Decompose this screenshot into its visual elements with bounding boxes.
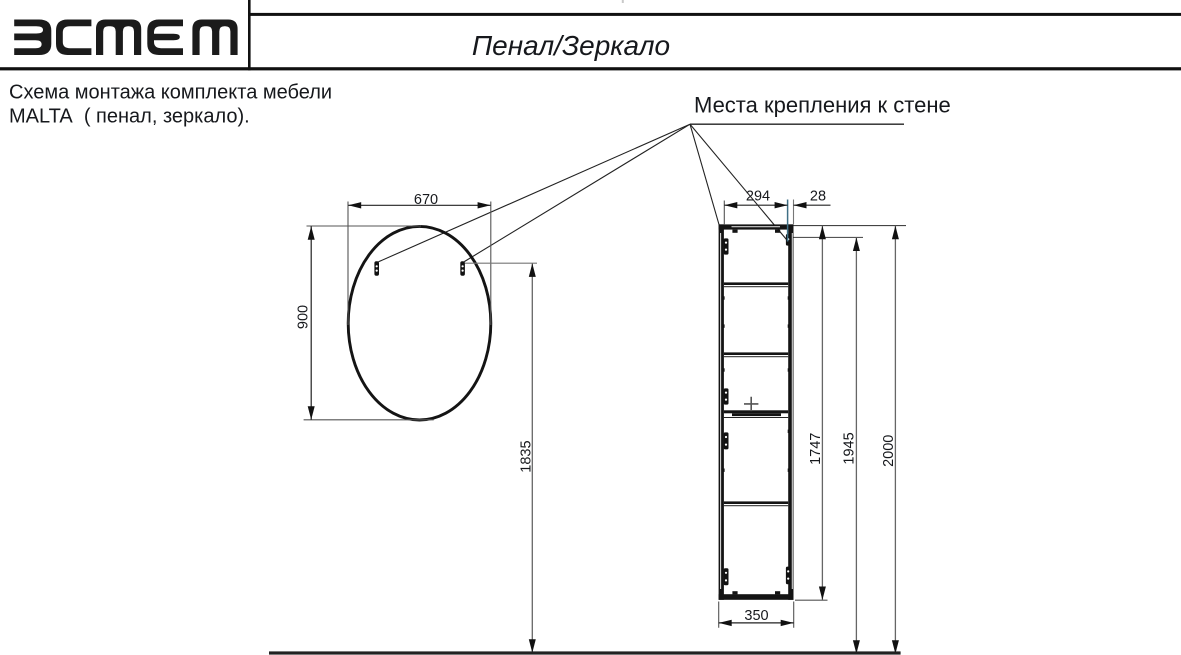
svg-text:Пенал/Зеркало: Пенал/Зеркало	[472, 30, 670, 61]
svg-text:350: 350	[744, 608, 768, 624]
svg-text:1747: 1747	[808, 433, 824, 465]
svg-text:Места крепления к стене: Места крепления к стене	[694, 93, 951, 118]
svg-text:MALTA ( пенал, зеркало).: MALTA ( пенал, зеркало).	[9, 106, 250, 128]
svg-text:1945: 1945	[842, 432, 858, 464]
svg-text:1835: 1835	[519, 440, 535, 472]
svg-text:900: 900	[295, 305, 311, 329]
svg-text:28: 28	[810, 188, 826, 204]
svg-text:294: 294	[746, 188, 770, 204]
svg-text:670: 670	[414, 192, 438, 208]
svg-text:2000: 2000	[881, 435, 897, 467]
svg-text:Схема монтажа комплекта мебели: Схема монтажа комплекта мебели	[9, 82, 332, 104]
